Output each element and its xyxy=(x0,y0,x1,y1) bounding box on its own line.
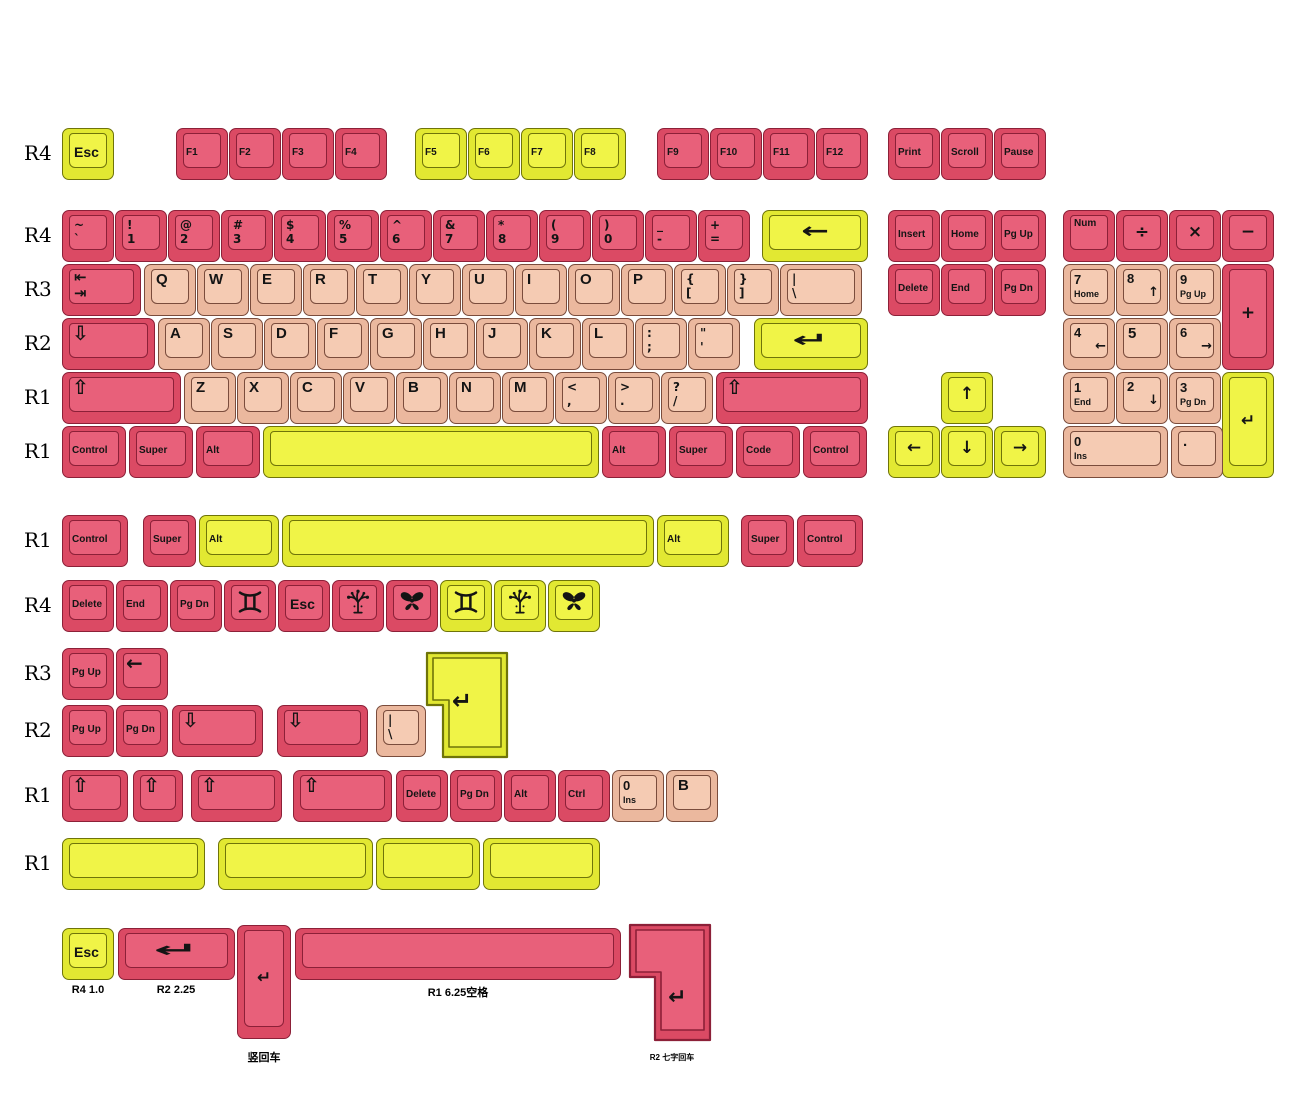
caption-4: R2 七字回车 xyxy=(650,1052,694,1063)
key-f3: F3 xyxy=(282,128,334,180)
key2-lalt: Alt xyxy=(199,515,279,567)
key-end: End xyxy=(941,264,993,316)
key-space xyxy=(263,426,599,478)
row-label-8: R3 xyxy=(24,661,52,685)
key-u: U xyxy=(462,264,514,316)
key-5: %5 xyxy=(327,210,379,262)
key2-np0: 0Ins xyxy=(612,770,664,822)
key-w: W xyxy=(197,264,249,316)
caption-2: R1 6.25空格 xyxy=(428,984,489,1000)
key2-pgup-r3: Pg Up xyxy=(62,648,114,700)
key-m: M xyxy=(502,372,554,424)
key2-bar-275 xyxy=(62,838,205,890)
key-home: Home xyxy=(941,210,993,262)
key2-pgdn-r2: Pg Dn xyxy=(116,705,168,757)
key-f7: F7 xyxy=(521,128,573,180)
key-numlock: Num xyxy=(1063,210,1115,262)
key-f8: F8 xyxy=(574,128,626,180)
key-rbracket: }] xyxy=(727,264,779,316)
key-p: P xyxy=(621,264,673,316)
key2-shift-200: ⇧ xyxy=(293,770,392,822)
key-f2: F2 xyxy=(229,128,281,180)
key-f5: F5 xyxy=(415,128,467,180)
key-a: A xyxy=(158,318,210,370)
key-rctrl: Control xyxy=(803,426,867,478)
key-h: H xyxy=(423,318,475,370)
key2-pgdn-r1: Pg Dn xyxy=(450,770,502,822)
key-esc: Esc xyxy=(62,128,114,180)
key2-b: B xyxy=(666,770,718,822)
key2-bar-200 xyxy=(376,838,480,890)
key-f12: F12 xyxy=(816,128,868,180)
key-butterfly-yellow xyxy=(548,580,600,632)
key-s: S xyxy=(211,318,263,370)
key3-225-return: ↵ xyxy=(118,928,235,980)
key2-rctrl: Control xyxy=(797,515,863,567)
key-np9: 9Pg Up xyxy=(1169,264,1221,316)
key-f11: F11 xyxy=(763,128,815,180)
key2-shift-125: ⇧ xyxy=(62,770,128,822)
key-rsuper: Super xyxy=(669,426,733,478)
key2-caps-a: ⇩ xyxy=(172,705,263,757)
key-lalt: Alt xyxy=(196,426,260,478)
key-equal: += xyxy=(698,210,750,262)
row-label-0: R4 xyxy=(24,141,52,165)
key-backspace: ← xyxy=(762,210,868,262)
gemini-icon xyxy=(225,581,275,622)
key-8: *8 xyxy=(486,210,538,262)
key-np6: 6→ xyxy=(1169,318,1221,370)
key3-esc: Esc xyxy=(62,928,114,980)
key2-pgdn: Pg Dn xyxy=(170,580,222,632)
caption-0: R4 1.0 xyxy=(72,984,104,996)
key-np7: 7Home xyxy=(1063,264,1115,316)
key2-shift-100: ⇧ xyxy=(133,770,183,822)
key-2: @2 xyxy=(168,210,220,262)
key-f6: F6 xyxy=(468,128,520,180)
caption-3: 竖回车 xyxy=(248,1049,281,1065)
key-np-plus: + xyxy=(1222,264,1274,370)
key-z: Z xyxy=(184,372,236,424)
key-1: !1 xyxy=(115,210,167,262)
key-insert: Insert xyxy=(888,210,940,262)
key-arrow-right: → xyxy=(994,426,1046,478)
key-enter: ↵ xyxy=(754,318,868,370)
key-np0: 0Ins xyxy=(1063,426,1168,478)
keycap-set-render: EscF1F2F3F4F5F6F7F8F9F10F11F12PrintScrol… xyxy=(0,0,1300,1100)
row-label-3: R2 xyxy=(24,331,52,355)
key-lshift: ⇧ xyxy=(62,372,181,424)
key-arrow-up: ↑ xyxy=(941,372,993,424)
key-capslock: ⇩ xyxy=(62,318,155,370)
key-pgdn: Pg Dn xyxy=(994,264,1046,316)
key-np-dot: . xyxy=(1171,426,1223,478)
key-d: D xyxy=(264,318,316,370)
key-flower-red xyxy=(332,580,384,632)
key2-space7u xyxy=(282,515,654,567)
key-np4: 4← xyxy=(1063,318,1115,370)
key2-ralt: Alt xyxy=(657,515,729,567)
key-j: J xyxy=(476,318,528,370)
flower-icon xyxy=(333,581,383,622)
key2-ctrl-r1: Ctrl xyxy=(558,770,610,822)
row-label-9: R2 xyxy=(24,718,52,742)
key-3: #3 xyxy=(221,210,273,262)
key-np-enter: ↵ xyxy=(1222,372,1274,478)
key-np-mul: × xyxy=(1169,210,1221,262)
key-code: Code xyxy=(736,426,800,478)
row-label-6: R1 xyxy=(24,528,52,552)
key2-delete-r1: Delete xyxy=(396,770,448,822)
key-np-minus: − xyxy=(1222,210,1274,262)
key-lsuper: Super xyxy=(129,426,193,478)
key-g: G xyxy=(370,318,422,370)
key2-backspace-1u: ← xyxy=(116,648,168,700)
key-9: (9 xyxy=(539,210,591,262)
key-q: Q xyxy=(144,264,196,316)
key2-delete: Delete xyxy=(62,580,114,632)
row-label-7: R4 xyxy=(24,593,52,617)
key-pgup: Pg Up xyxy=(994,210,1046,262)
row-label-10: R1 xyxy=(24,783,52,807)
key-backslash: |\ xyxy=(780,264,862,316)
key-period: >. xyxy=(608,372,660,424)
key2-pgup-r2: Pg Up xyxy=(62,705,114,757)
key-4: $4 xyxy=(274,210,326,262)
key2-alt-r1: Alt xyxy=(504,770,556,822)
key-np-div: ÷ xyxy=(1116,210,1168,262)
key-t: T xyxy=(356,264,408,316)
key-e: E xyxy=(250,264,302,316)
row-label-4: R1 xyxy=(24,385,52,409)
key2-bar-225 xyxy=(483,838,600,890)
row-label-2: R3 xyxy=(24,277,52,301)
key-7: &7 xyxy=(433,210,485,262)
key-delete: Delete xyxy=(888,264,940,316)
key-np2: 2↓ xyxy=(1116,372,1168,424)
key-comma: <, xyxy=(555,372,607,424)
key-v: V xyxy=(343,372,395,424)
key-r: R xyxy=(303,264,355,316)
key-b: B xyxy=(396,372,448,424)
key-6: ^6 xyxy=(380,210,432,262)
key-quote: "' xyxy=(688,318,740,370)
key-scroll: Scroll xyxy=(941,128,993,180)
key-grave: ~` xyxy=(62,210,114,262)
key-ralt: Alt xyxy=(602,426,666,478)
key2-end: End xyxy=(116,580,168,632)
row-label-11: R1 xyxy=(24,851,52,875)
gemini-icon xyxy=(441,581,491,622)
key-f4: F4 xyxy=(335,128,387,180)
key-c: C xyxy=(290,372,342,424)
key-arrow-down: ↓ xyxy=(941,426,993,478)
key-lctrl: Control xyxy=(62,426,126,478)
key-np3: 3Pg Dn xyxy=(1169,372,1221,424)
key2-bar-300 xyxy=(218,838,373,890)
row-label-5: R1 xyxy=(24,439,52,463)
key-np1: 1End xyxy=(1063,372,1115,424)
key-gemini-red xyxy=(224,580,276,632)
key-k: K xyxy=(529,318,581,370)
key-i: I xyxy=(515,264,567,316)
key-o: O xyxy=(568,264,620,316)
flower-icon xyxy=(495,581,545,622)
key-0: )0 xyxy=(592,210,644,262)
key2-caps-b: ⇩ xyxy=(277,705,368,757)
key-n: N xyxy=(449,372,501,424)
key2-pipe: |\ xyxy=(376,705,426,757)
key-semicolon: :; xyxy=(635,318,687,370)
key2-esc: Esc xyxy=(278,580,330,632)
key-tab: ⇤⇥ xyxy=(62,264,141,316)
key-arrow-left: ← xyxy=(888,426,940,478)
key3-625-space xyxy=(295,928,621,980)
butterfly-icon xyxy=(387,581,437,622)
key-seven-enter-legend: ↵ xyxy=(668,985,686,1010)
key-iso-enter-legend: ↵ xyxy=(452,687,472,715)
key-f10: F10 xyxy=(710,128,762,180)
key-x: X xyxy=(237,372,289,424)
key-y: Y xyxy=(409,264,461,316)
key-np5: 5 xyxy=(1116,318,1168,370)
butterfly-icon xyxy=(549,581,599,622)
key-print: Print xyxy=(888,128,940,180)
key-l: L xyxy=(582,318,634,370)
key-butterfly-red xyxy=(386,580,438,632)
key-minus: _- xyxy=(645,210,697,262)
key-np8: 8↑ xyxy=(1116,264,1168,316)
key2-lctrl: Control xyxy=(62,515,128,567)
key-slash: ?/ xyxy=(661,372,713,424)
key-flower-yellow xyxy=(494,580,546,632)
caption-1: R2 2.25 xyxy=(157,984,196,996)
key2-rsuper: Super xyxy=(741,515,794,567)
key-seven-enter xyxy=(627,922,713,1043)
key-f1: F1 xyxy=(176,128,228,180)
key-f: F xyxy=(317,318,369,370)
key-pause: Pause xyxy=(994,128,1046,180)
key3-vertical-enter: ↵ xyxy=(237,925,291,1039)
key-rshift: ⇧ xyxy=(716,372,868,424)
key-gemini-yellow xyxy=(440,580,492,632)
key2-shift-175: ⇧ xyxy=(191,770,282,822)
key-lbracket: {[ xyxy=(674,264,726,316)
key-f9: F9 xyxy=(657,128,709,180)
row-label-1: R4 xyxy=(24,223,52,247)
key2-lsuper: Super xyxy=(143,515,196,567)
